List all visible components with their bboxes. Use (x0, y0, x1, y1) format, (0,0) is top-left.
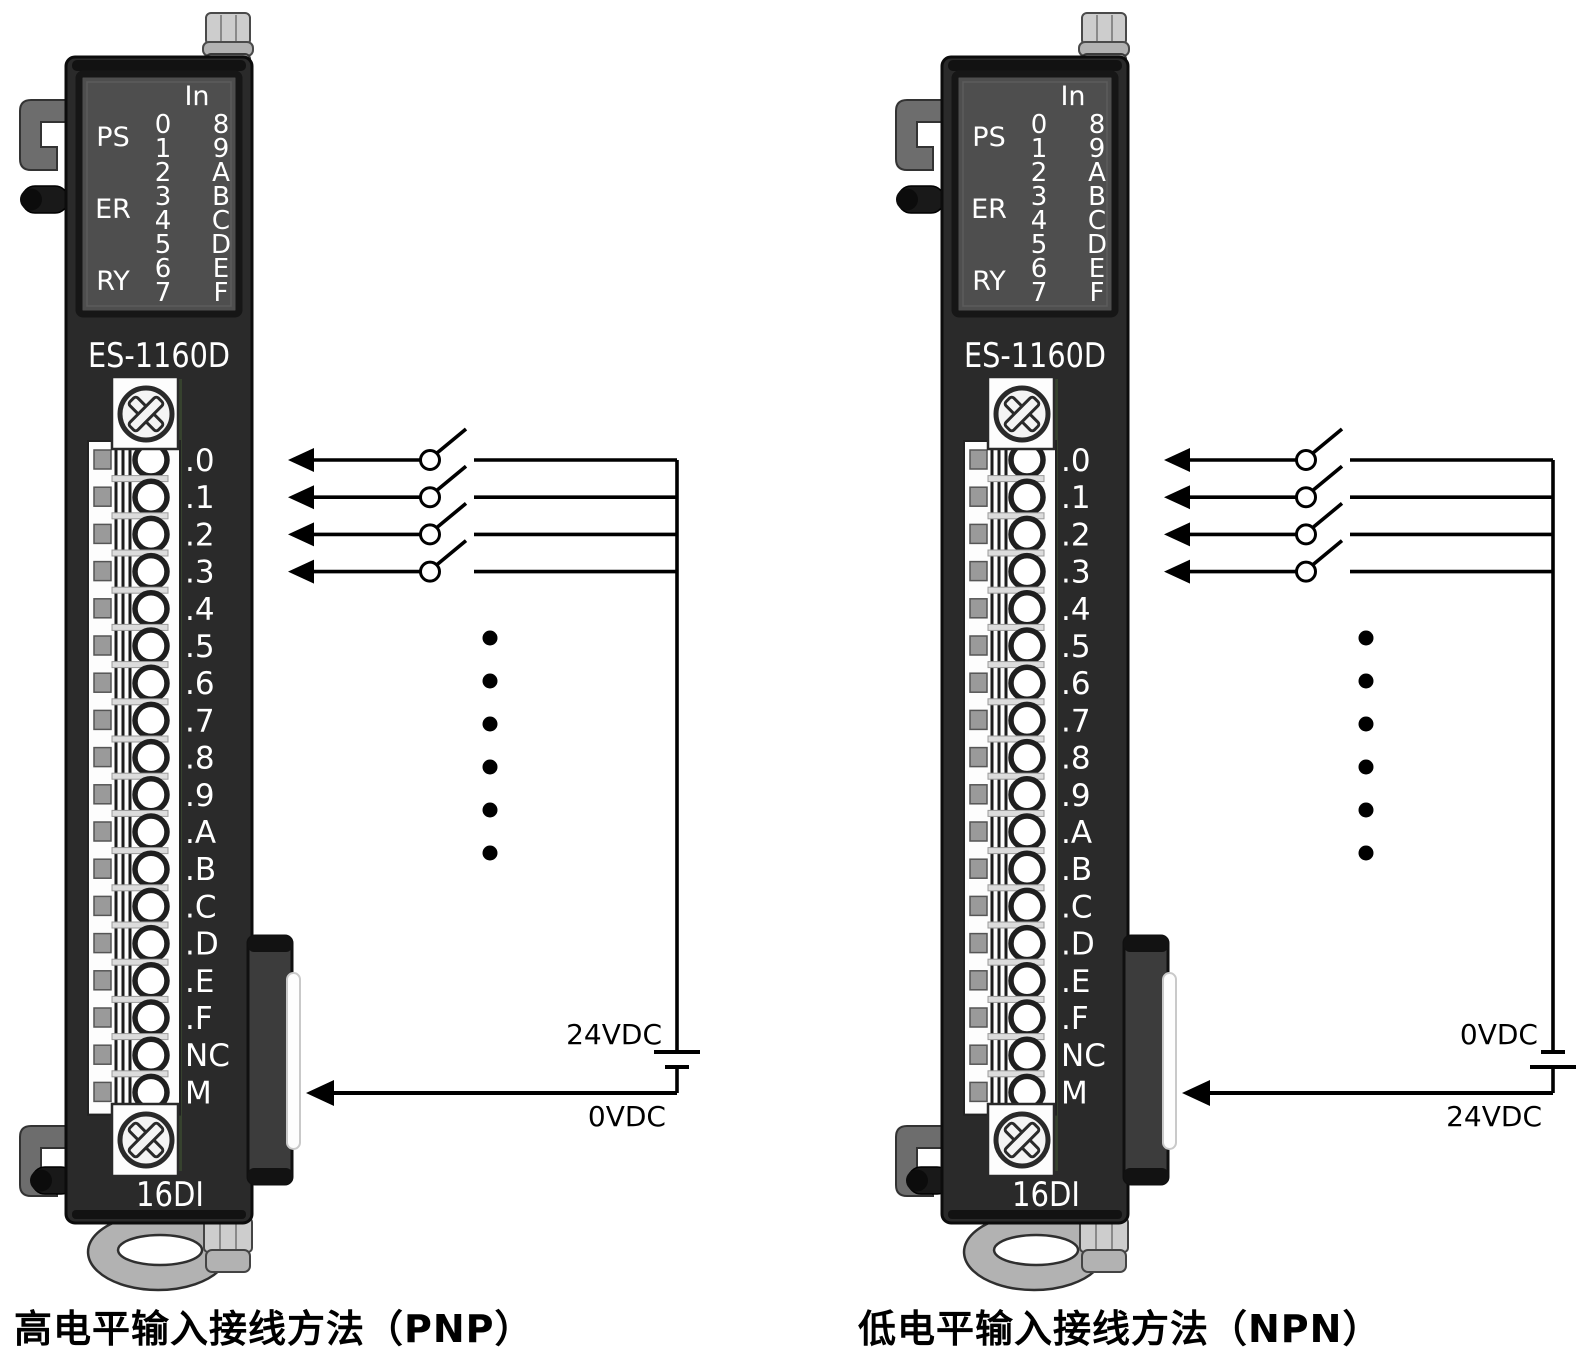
switch-contact (421, 451, 440, 470)
switch-blade (437, 466, 466, 490)
supply-top-label: 24VDC (566, 1018, 662, 1051)
input-arrow (288, 448, 314, 472)
terminal-screw (1011, 890, 1043, 922)
led-panel: InPSERRY0123456789ABCDEF (955, 74, 1115, 314)
module-type-label: 16DI (136, 1175, 204, 1215)
terminal-label: .2 (1061, 517, 1091, 553)
terminal-label: .9 (185, 778, 215, 814)
terminal-label: .F (1061, 1001, 1089, 1037)
terminal-screw (1011, 816, 1043, 848)
diagram-canvas: InPSERRY0123456789ABCDEFES-1160D.0.1.2.3… (0, 0, 1594, 1358)
terminal-block: .0.1.2.3.4.5.6.7.8.9.A.B.C.D.E.FNCM (88, 441, 230, 1115)
switch-contact (1297, 451, 1316, 470)
power-supply (654, 1052, 700, 1067)
terminal-screw (135, 481, 167, 513)
terminal-label: .C (1061, 889, 1093, 925)
terminal-screw (1011, 853, 1043, 885)
terminal-label: .4 (1061, 592, 1091, 628)
common-return-arrow (306, 1080, 334, 1106)
switch-blade (1313, 429, 1342, 453)
supply-bottom-label: 0VDC (588, 1100, 666, 1133)
terminal-screw (1011, 630, 1043, 662)
input-line (1164, 429, 1553, 472)
ellipsis-dot (1359, 760, 1374, 775)
ellipsis-dot (483, 631, 498, 646)
terminal-label: .5 (1061, 629, 1091, 665)
expansion-connector (248, 936, 300, 1184)
terminal-screw (1011, 928, 1043, 960)
terminal-screw-top (988, 377, 1054, 449)
expansion-connector (1124, 936, 1176, 1184)
input-line (1164, 541, 1553, 584)
input-arrow (288, 485, 314, 509)
terminal-screw-bottom (988, 1104, 1054, 1176)
terminal-label: .E (1061, 964, 1090, 1000)
terminal-label: .2 (185, 517, 215, 553)
input-arrow (1164, 522, 1190, 546)
ellipsis-dot (1359, 717, 1374, 732)
terminal-screw (1011, 556, 1043, 588)
switch-blade (437, 429, 466, 453)
supply-top-label: 0VDC (1460, 1018, 1538, 1051)
terminal-screw (135, 742, 167, 774)
terminal-screw (1011, 965, 1043, 997)
input-line (1164, 503, 1553, 546)
switch-blade (437, 503, 466, 527)
ellipsis-dot (1359, 631, 1374, 646)
wiring-pnp: 24VDC0VDC (288, 429, 700, 1133)
terminal-screw (1011, 1039, 1043, 1071)
ellipsis-dot (483, 674, 498, 689)
input-line (1164, 466, 1553, 509)
ellipsis-dot (483, 717, 498, 732)
input-line (288, 503, 677, 546)
status-led-label-ry: RY (96, 266, 130, 297)
terminal-screw (135, 779, 167, 811)
terminal-label: .A (1061, 815, 1092, 851)
led-panel: InPSERRY0123456789ABCDEF (79, 74, 239, 314)
switch-contact (1297, 488, 1316, 507)
supply-bottom-label: 24VDC (1446, 1100, 1542, 1133)
switch-blade (437, 541, 466, 565)
figure-npn: InPSERRY0123456789ABCDEFES-1160D.0.1.2.3… (896, 13, 1576, 1290)
caption-npn: 低电平输入接线方法（NPN） (858, 1298, 1381, 1353)
ellipsis-dot (483, 803, 498, 818)
module-type-label: 16DI (1012, 1175, 1080, 1215)
terminal-screw (1011, 742, 1043, 774)
terminal-screw (135, 1039, 167, 1071)
terminal-screw (135, 816, 167, 848)
led-input-label: F (1090, 278, 1105, 308)
terminal-screw (135, 928, 167, 960)
led-input-label: F (214, 278, 229, 308)
ellipsis-dot (1359, 803, 1374, 818)
terminal-screw (135, 1002, 167, 1034)
mounting-bolt-bottom (1080, 1218, 1128, 1272)
switch-contact (1297, 525, 1316, 544)
terminal-screw (1011, 593, 1043, 625)
terminal-screw-top (112, 377, 178, 449)
input-arrow (1164, 485, 1190, 509)
io-module: InPSERRY0123456789ABCDEFES-1160D.0.1.2.3… (896, 13, 1176, 1290)
switch-blade (1313, 541, 1342, 565)
terminal-screw (135, 556, 167, 588)
common-return-arrow (1182, 1080, 1210, 1106)
status-led-label-ps: PS (972, 122, 1005, 153)
terminal-label: .0 (1061, 443, 1091, 479)
led-header-in: In (184, 81, 209, 112)
terminal-label: .1 (185, 480, 215, 516)
model-name: ES-1160D (964, 336, 1106, 376)
side-knob-top (20, 186, 68, 213)
terminal-label: .6 (185, 666, 215, 702)
input-arrow (288, 522, 314, 546)
terminal-block: .0.1.2.3.4.5.6.7.8.9.A.B.C.D.E.FNCM (964, 441, 1106, 1115)
ellipsis-dot (1359, 674, 1374, 689)
terminal-label: .3 (185, 555, 215, 591)
terminal-screw (135, 518, 167, 550)
terminal-label: .A (185, 815, 216, 851)
terminal-label: .C (185, 889, 217, 925)
terminal-screw (1011, 518, 1043, 550)
terminal-label: .3 (1061, 555, 1091, 591)
status-led-label-ry: RY (972, 266, 1006, 297)
terminal-screw (1011, 667, 1043, 699)
terminal-label: .B (1061, 852, 1092, 888)
terminal-label: M (185, 1075, 212, 1111)
terminal-screw (135, 965, 167, 997)
terminal-label: .E (185, 964, 214, 1000)
terminal-label: .5 (185, 629, 215, 665)
terminal-screw (135, 593, 167, 625)
terminal-label: .7 (1061, 703, 1091, 739)
power-supply (1530, 1052, 1576, 1067)
terminal-screw (135, 630, 167, 662)
terminal-label: .9 (1061, 778, 1091, 814)
switch-contact (421, 525, 440, 544)
ellipsis-dot (1359, 846, 1374, 861)
terminal-label: .B (185, 852, 216, 888)
input-arrow (1164, 448, 1190, 472)
terminal-label: .6 (1061, 666, 1091, 702)
side-knob-top (896, 186, 944, 213)
terminal-label: .0 (185, 443, 215, 479)
terminal-screw (135, 704, 167, 736)
terminal-label: .1 (1061, 480, 1091, 516)
terminal-screw (1011, 704, 1043, 736)
io-module: InPSERRY0123456789ABCDEFES-1160D.0.1.2.3… (20, 13, 300, 1290)
led-input-label: 7 (1031, 278, 1048, 308)
terminal-label: .D (185, 927, 219, 963)
terminal-label: M (1061, 1075, 1088, 1111)
terminal-label: .8 (185, 741, 215, 777)
switch-blade (1313, 503, 1342, 527)
status-led-label-er: ER (971, 194, 1007, 225)
status-led-label-ps: PS (96, 122, 129, 153)
switch-contact (1297, 562, 1316, 581)
terminal-label: NC (185, 1038, 230, 1074)
terminal-label: .8 (1061, 741, 1091, 777)
mounting-bolt-bottom (204, 1218, 252, 1272)
din-clip-top (896, 100, 942, 170)
terminal-screw (1011, 481, 1043, 513)
model-name: ES-1160D (88, 336, 230, 376)
led-header-in: In (1060, 81, 1085, 112)
din-clip-top (20, 100, 66, 170)
terminal-screw-bottom (112, 1104, 178, 1176)
switch-blade (1313, 466, 1342, 490)
ellipsis-dot (483, 760, 498, 775)
input-arrow (288, 560, 314, 584)
input-line (288, 466, 677, 509)
caption-pnp: 高电平输入接线方法（PNP） (14, 1298, 534, 1353)
terminal-screw (1011, 1002, 1043, 1034)
wiring-diagram-svg: InPSERRY0123456789ABCDEFES-1160D.0.1.2.3… (0, 0, 1594, 1296)
switch-contact (421, 488, 440, 507)
terminal-screw (1011, 779, 1043, 811)
terminal-label: NC (1061, 1038, 1106, 1074)
input-line (288, 541, 677, 584)
figure-pnp: InPSERRY0123456789ABCDEFES-1160D.0.1.2.3… (20, 13, 700, 1290)
terminal-screw (135, 667, 167, 699)
terminal-screw (135, 890, 167, 922)
ellipsis-dot (483, 846, 498, 861)
wiring-npn: 0VDC24VDC (1164, 429, 1576, 1133)
status-led-label-er: ER (95, 194, 131, 225)
terminal-screw (135, 853, 167, 885)
terminal-label: .D (1061, 927, 1095, 963)
switch-contact (421, 562, 440, 581)
led-input-label: 7 (155, 278, 172, 308)
input-line (288, 429, 677, 472)
input-arrow (1164, 560, 1190, 584)
terminal-label: .4 (185, 592, 215, 628)
terminal-label: .F (185, 1001, 213, 1037)
terminal-label: .7 (185, 703, 215, 739)
